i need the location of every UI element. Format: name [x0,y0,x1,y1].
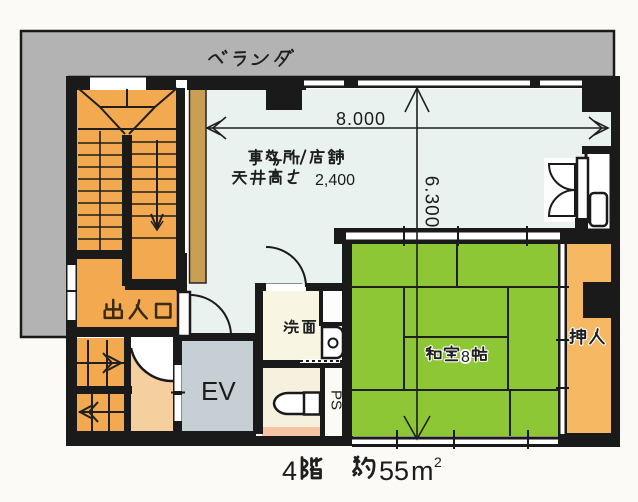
svg-text:8: 8 [461,349,470,366]
svg-text:2: 2 [434,454,442,470]
svg-text:55: 55 [379,456,409,486]
svg-text:2,400: 2,400 [315,172,355,189]
svg-text:m: m [411,456,434,486]
svg-text:8.000: 8.000 [336,109,386,129]
svg-text:6.300: 6.300 [421,176,442,229]
svg-text:EV: EV [201,376,236,406]
svg-text:4: 4 [282,456,297,486]
svg-text:PS: PS [328,390,345,410]
